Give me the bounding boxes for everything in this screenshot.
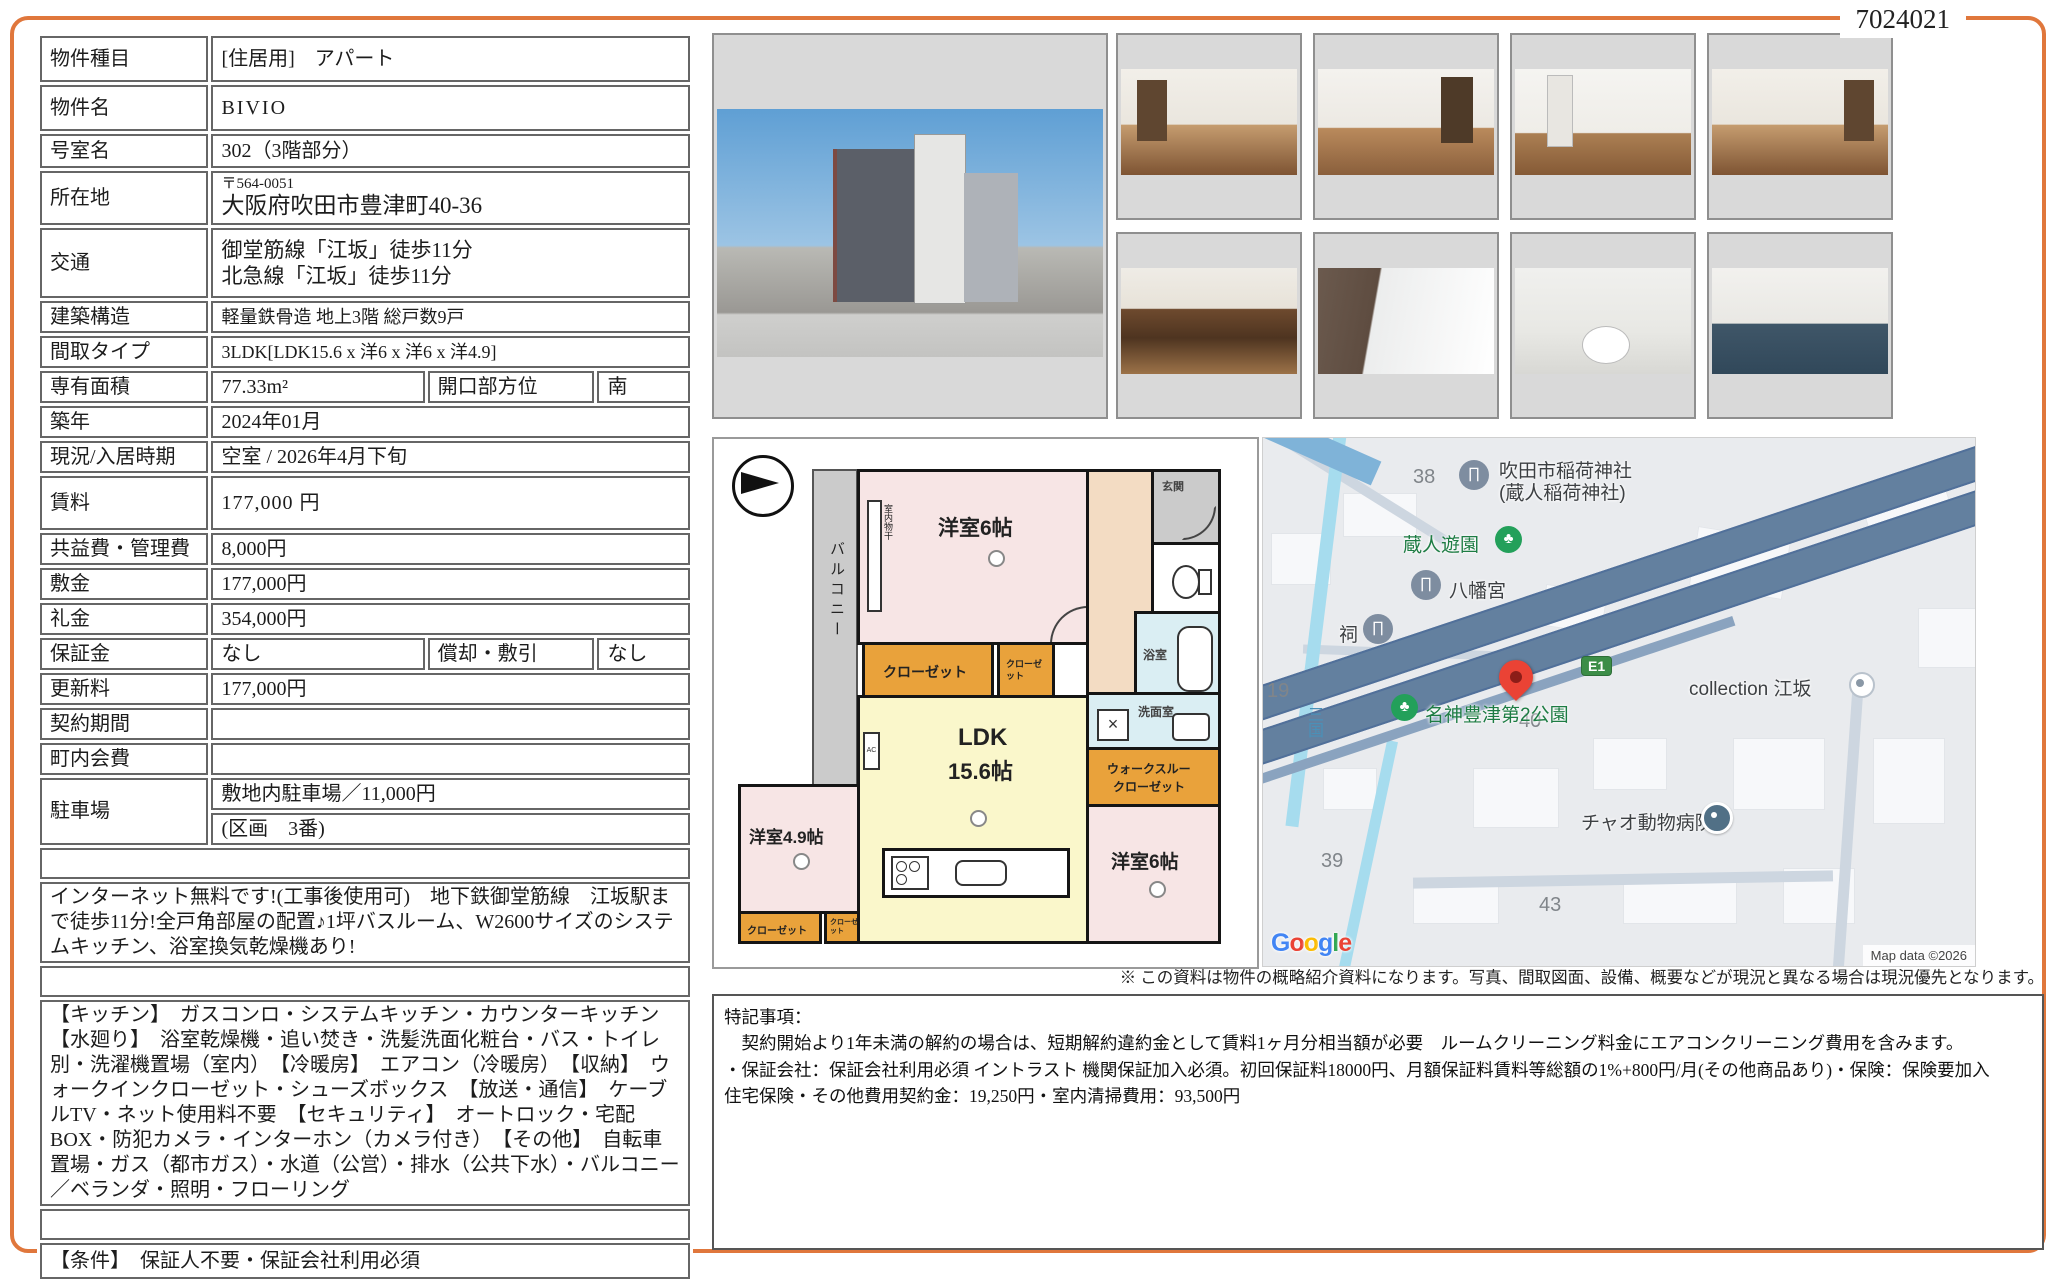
room-c-label: 洋室6帖 (1111, 847, 1179, 874)
value-room-number: 302（3階部分） (211, 134, 690, 168)
ceiling-light-icon (793, 853, 810, 870)
toilet-area (1151, 542, 1221, 614)
ldk-area: LDK 15.6帖 AC (857, 695, 1089, 944)
bathroom-photo-image (1318, 268, 1494, 374)
closet-bottom: クローゼット (738, 911, 822, 944)
value-key-money: 354,000円 (211, 603, 690, 635)
photo-kitchen (1116, 232, 1302, 419)
washing-machine-icon: × (1097, 709, 1129, 741)
value-opening-direction: 南 (597, 371, 690, 403)
photo-washroom (1707, 232, 1893, 419)
wtc-label-1: ウォークスルー (1107, 760, 1191, 777)
door-arc (1050, 606, 1088, 644)
document-number: 7024021 (1840, 0, 1967, 38)
hallway-photo-image (1515, 69, 1691, 175)
room-west-49: 洋室4.9帖 (738, 784, 860, 914)
toilet-icon (1172, 565, 1200, 599)
label-town-fee: 町内会費 (40, 743, 208, 775)
closet-label: クローゼット (883, 662, 967, 682)
compass-icon (732, 455, 794, 517)
canal-line (1262, 437, 1381, 485)
section-header-notes: 備 考 (40, 848, 690, 879)
river-label: 三国 (1301, 706, 1325, 738)
washroom-photo-image (1712, 268, 1888, 374)
value-town-fee (211, 743, 690, 775)
bathroom-area: 浴室 (1134, 611, 1221, 695)
photo-hallway-closet (1510, 33, 1696, 220)
room-a-label: 洋室6帖 (938, 512, 1013, 542)
value-guarantee-deposit: なし (211, 638, 424, 670)
room-west-6: 室内物干 洋室6帖 (857, 469, 1089, 645)
block-number-19: 19 (1267, 680, 1289, 703)
washbasin-icon (1172, 713, 1210, 741)
value-deposit: 177,000円 (211, 568, 690, 600)
value-floor-area: 77.33m² (211, 371, 424, 403)
property-table: 物件種目 [住居用] アパート 物件名 BIVIO 号室名 302（3階部分） … (37, 33, 693, 1282)
vet-poi-icon (1701, 802, 1733, 834)
floor-plan: バルコニー 室内物干 洋室6帖 玄関 浴室 クローゼット クローゼット LDK … (712, 437, 1259, 969)
sink-icon (955, 860, 1007, 886)
value-address: 〒564-0051 大阪府吹田市豊津町40-36 (211, 171, 690, 225)
collection-esaka-label: collection 江坂 (1689, 674, 1812, 701)
photo-exterior (712, 33, 1108, 419)
address-text: 大阪府吹田市豊津町40-36 (221, 192, 680, 220)
ceiling-light-icon (1149, 881, 1166, 898)
closet-small-label: クローゼット (1006, 659, 1050, 682)
equipment-text: 【キッチン】 ガスコンロ・システムキッチン・カウンターキッチン 【水廻り】 浴室… (40, 1000, 690, 1206)
label-address: 所在地 (40, 171, 208, 225)
hachimangu-label: 八幡宮 (1449, 576, 1506, 603)
bathtub-icon (1177, 626, 1213, 692)
washroom-area: × 洗面室 (1086, 692, 1221, 750)
label-deposit: 敷金 (40, 568, 208, 600)
value-property-type: [住居用] アパート (211, 36, 690, 82)
washroom-label: 洗面室 (1138, 703, 1174, 720)
value-contract-period (211, 708, 690, 740)
laundry-pole-icon (867, 500, 882, 612)
value-property-name: BIVIO (211, 85, 690, 131)
value-structure: 軽量鉄骨造 地上3階 総戸数9戸 (211, 301, 690, 333)
value-renewal-fee: 177,000円 (211, 673, 690, 705)
balcony-area: バルコニー (812, 469, 858, 787)
block-number-38: 38 (1413, 466, 1435, 489)
section-header-conditions: 条 件 (40, 1209, 690, 1240)
closet-bottom-small-label: クローゼット (830, 918, 860, 936)
balcony-label: バルコニー (826, 541, 847, 641)
google-logo: Google (1271, 929, 1351, 958)
label-rent: 賃料 (40, 476, 208, 530)
photo-gallery (712, 33, 1900, 417)
exterior-photo-image (717, 109, 1103, 357)
label-contract-period: 契約期間 (40, 708, 208, 740)
closet-bottom-label: クローゼット (747, 922, 807, 937)
closet-bottom-small: クローゼット (824, 911, 860, 944)
value-parking-slot: (区画 3番) (211, 813, 690, 845)
vet-hospital-label: チャオ動物病院 (1581, 808, 1714, 835)
photo-living-room (1116, 33, 1302, 220)
shrine-pin-icon: ∏ (1363, 614, 1393, 644)
label-opening-direction: 開口部方位 (428, 371, 595, 403)
park-icon: ♣ (1495, 526, 1522, 553)
shrine-name-line2: (蔵人稲荷神社) (1499, 478, 1626, 505)
entrance-area: 玄関 (1151, 469, 1221, 545)
shrine-pin-icon: ∏ (1411, 570, 1441, 600)
label-built-year: 築年 (40, 406, 208, 438)
photo-bathroom (1313, 232, 1499, 419)
park2-label: 名神豊津第2公園 (1425, 700, 1569, 727)
value-parking: 敷地内駐車場／11,000円 (211, 778, 690, 810)
entrance-door-arc (1182, 506, 1216, 540)
label-renewal-fee: 更新料 (40, 673, 208, 705)
value-built-year: 2024年01月 (211, 406, 690, 438)
value-common-fee: 8,000円 (211, 533, 690, 565)
shrine-pin-icon: ∏ (1459, 460, 1489, 490)
special-notes-title: 特記事項： (724, 1004, 2032, 1030)
value-amortization: なし (597, 638, 690, 670)
bedroom-balcony-photo-image (1712, 69, 1888, 175)
label-common-fee: 共益費・管理費 (40, 533, 208, 565)
transport-line-2: 北急線「江坂」徒歩11分 (221, 263, 680, 289)
label-layout-type: 間取タイプ (40, 336, 208, 368)
special-notes-line2: ・保証会社：保証会社利用必須 イントラスト 機関保証加入必須。初回保証料1800… (724, 1057, 2032, 1083)
kitchen-counter (882, 848, 1070, 898)
park1-label: 蔵人遊園 (1403, 530, 1479, 557)
photo-bedroom-balcony (1707, 33, 1893, 220)
living-room-photo-image (1121, 69, 1297, 175)
photo-bedroom (1313, 33, 1499, 220)
stove-icon (891, 856, 929, 890)
highway-e1-badge: E1 (1581, 656, 1612, 676)
value-occupancy: 空室 / 2026年4月下旬 (211, 441, 690, 473)
toilet-photo-image (1515, 268, 1691, 374)
bath-label: 浴室 (1143, 646, 1167, 663)
label-property-type: 物件種目 (40, 36, 208, 82)
photo-toilet (1510, 232, 1696, 419)
toilet-tank-icon (1198, 569, 1212, 595)
section-header-equipment: 設 備 (40, 966, 690, 997)
special-notes-line1: 契約開始より1年未満の解約の場合は、短期解約違約金として賃料1ヶ月分相当額が必要… (724, 1030, 2032, 1056)
special-notes-line3: 住宅保険・その他費用契約金：19,250円・室内清掃費用：93,500円 (724, 1083, 2032, 1109)
wtc-label-2: クローゼット (1113, 778, 1185, 795)
location-map: 38 19 39 40 43 ∏ 吹田市稲荷神社 (蔵人稲荷神社) 蔵人遊園 ♣… (1262, 437, 1976, 967)
label-property-name: 物件名 (40, 85, 208, 131)
label-structure: 建築構造 (40, 301, 208, 333)
hokora-label: 祠 (1339, 620, 1358, 647)
value-rent: 177,000 円 (211, 476, 690, 530)
transport-line-1: 御堂筋線「江坂」徒歩11分 (221, 237, 680, 263)
kitchen-photo-image (1121, 268, 1297, 374)
label-amortization: 償却・敷引 (428, 638, 595, 670)
block-number-39: 39 (1321, 850, 1343, 873)
entrance-label: 玄関 (1162, 478, 1184, 494)
conditions-text: 【条件】 保証人不要・保証会社利用必須 (40, 1243, 690, 1279)
ceiling-light-icon (970, 810, 987, 827)
closet-large: クローゼット (862, 642, 994, 698)
closet-small: クローゼット (997, 642, 1055, 698)
bedroom-photo-image (1318, 69, 1494, 175)
ldk-label-1: LDK (958, 724, 1007, 752)
ldk-label-2: 15.6帖 (948, 754, 1013, 786)
map-data-attribution: Map data ©2026 (1863, 945, 1975, 966)
room-b-label: 洋室4.9帖 (749, 823, 824, 848)
value-transport: 御堂筋線「江坂」徒歩11分 北急線「江坂」徒歩11分 (211, 228, 690, 298)
label-transport: 交通 (40, 228, 208, 298)
block-number-43: 43 (1539, 894, 1561, 917)
room-east-6: 洋室6帖 (1086, 804, 1221, 944)
value-layout-type: 3LDK[LDK15.6 x 洋6 x 洋6 x 洋4.9] (211, 336, 690, 368)
label-room-number: 号室名 (40, 134, 208, 168)
park-icon: ♣ (1391, 694, 1418, 721)
label-parking: 駐車場 (40, 778, 208, 845)
label-floor-area: 専有面積 (40, 371, 208, 403)
special-notes-box: 特記事項： 契約開始より1年未満の解約の場合は、短期解約違約金として賃料1ヶ月分… (712, 994, 2044, 1250)
label-guarantee-deposit: 保証金 (40, 638, 208, 670)
ac-unit-icon: AC (863, 732, 880, 770)
postal-code: 〒564-0051 (221, 176, 680, 193)
disclaimer-text: ※ この資料は物件の概略紹介資料になります。写真、間取図面、設備、概要などが現況… (712, 964, 2044, 988)
laundry-label: 室内物干 (882, 504, 895, 540)
label-occupancy: 現況/入居時期 (40, 441, 208, 473)
walkthrough-closet: ウォークスルー クローゼット (1086, 747, 1221, 807)
notes-text: インターネット無料です!(工事後使用可) 地下鉄御堂筋線 江坂駅まで徒歩11分!… (40, 882, 690, 963)
label-key-money: 礼金 (40, 603, 208, 635)
poi-dot-icon (1849, 672, 1875, 698)
ceiling-light-icon (988, 550, 1005, 567)
